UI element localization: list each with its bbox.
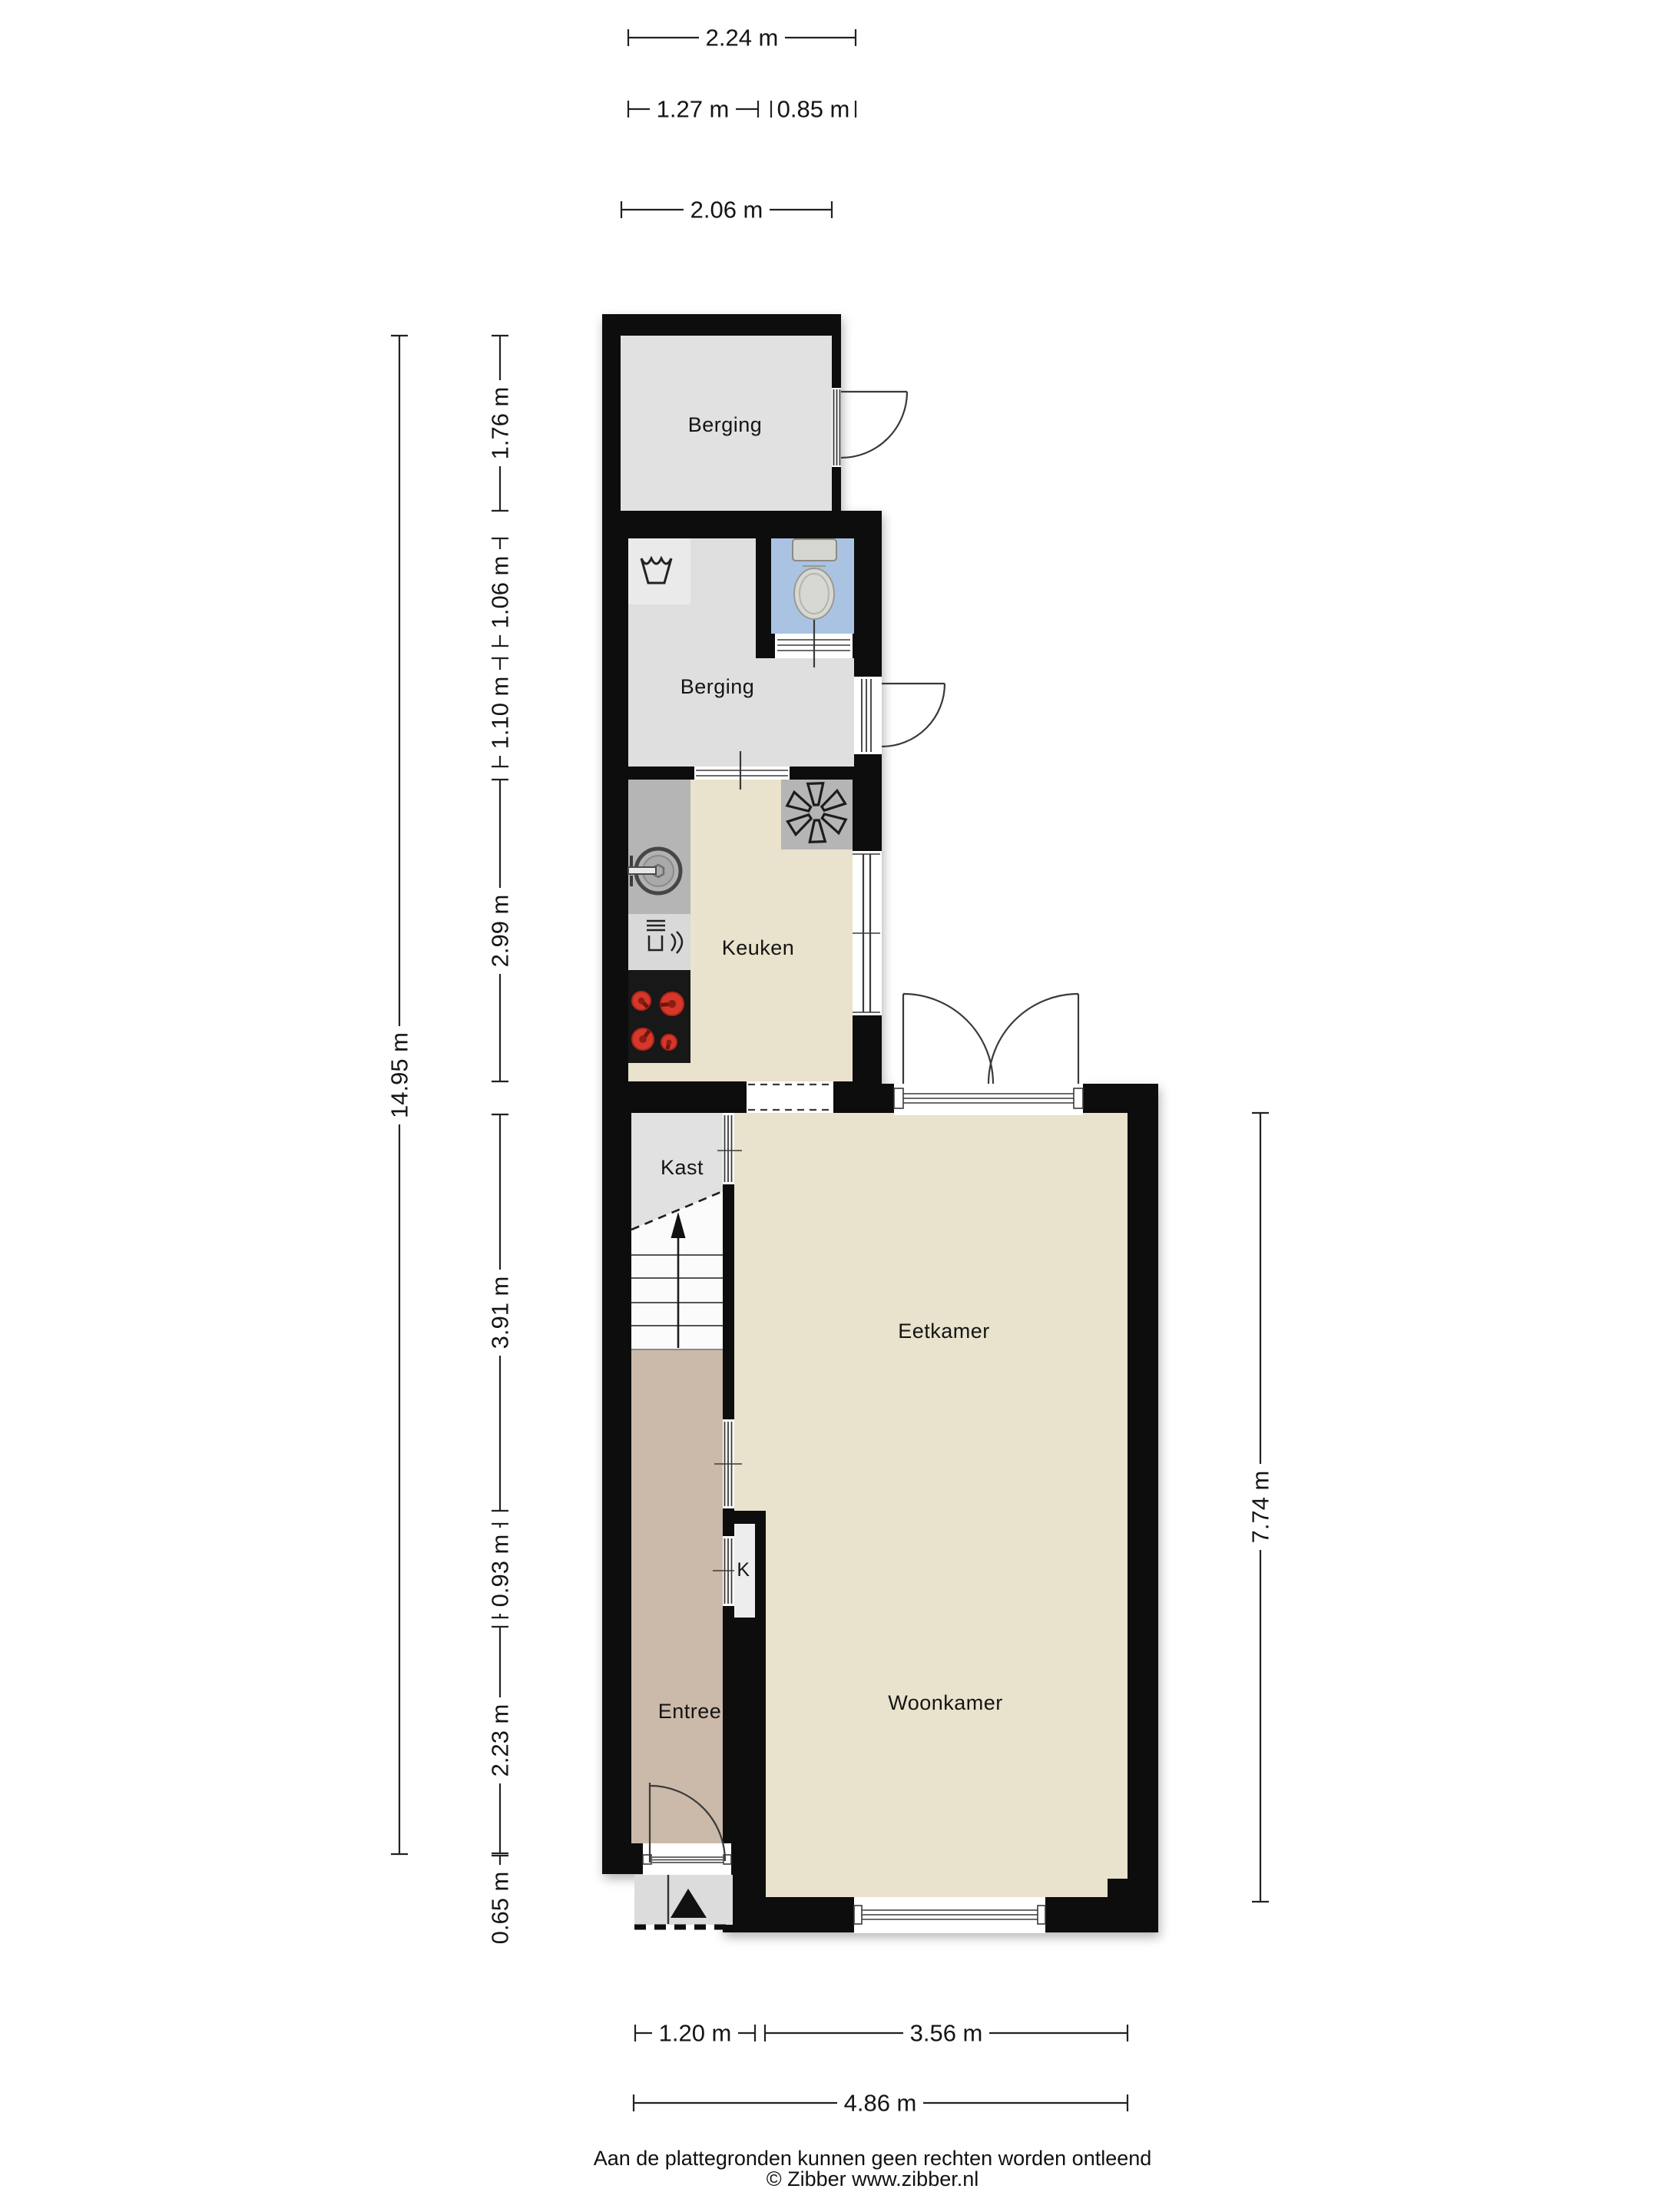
- svg-text:© Zibber www.zibber.nl: © Zibber www.zibber.nl: [767, 2167, 979, 2190]
- svg-text:1.20 m: 1.20 m: [659, 2020, 732, 2047]
- svg-text:1.06 m: 1.06 m: [487, 556, 514, 629]
- svg-text:1.27 m: 1.27 m: [657, 96, 730, 123]
- svg-text:Berging: Berging: [688, 413, 763, 436]
- svg-text:3.56 m: 3.56 m: [910, 2020, 983, 2047]
- svg-text:3.91 m: 3.91 m: [487, 1277, 514, 1349]
- svg-text:2.24 m: 2.24 m: [706, 25, 779, 51]
- svg-text:Keuken: Keuken: [722, 936, 795, 959]
- svg-text:14.95 m: 14.95 m: [386, 1032, 413, 1118]
- svg-text:Aan de plattegronden kunnen ge: Aan de plattegronden kunnen geen rechten…: [594, 2147, 1152, 2170]
- svg-text:Kast: Kast: [661, 1156, 704, 1179]
- svg-text:2.23 m: 2.23 m: [487, 1704, 514, 1777]
- svg-text:1.76 m: 1.76 m: [487, 387, 514, 460]
- svg-text:Entree: Entree: [658, 1700, 722, 1723]
- svg-text:Eetkamer: Eetkamer: [898, 1320, 990, 1343]
- svg-text:2.06 m: 2.06 m: [690, 197, 763, 224]
- svg-text:K: K: [737, 1559, 750, 1581]
- svg-text:0.65 m: 0.65 m: [487, 1872, 514, 1945]
- svg-text:Berging: Berging: [680, 675, 755, 698]
- svg-text:Woonkamer: Woonkamer: [888, 1691, 1003, 1714]
- svg-text:7.74 m: 7.74 m: [1247, 1471, 1274, 1544]
- svg-text:1.10 m: 1.10 m: [487, 677, 514, 750]
- svg-text:4.86 m: 4.86 m: [844, 2090, 917, 2117]
- svg-text:2.99 m: 2.99 m: [487, 895, 514, 968]
- svg-text:0.85 m: 0.85 m: [777, 96, 850, 123]
- svg-text:0.93 m: 0.93 m: [487, 1535, 514, 1608]
